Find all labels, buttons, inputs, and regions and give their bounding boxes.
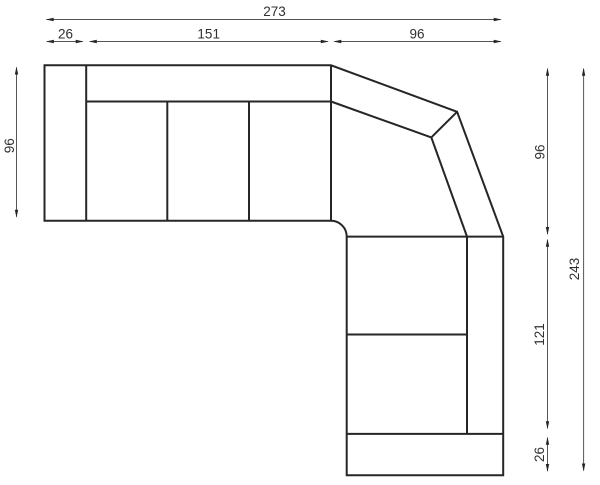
svg-text:151: 151 [197,27,220,42]
svg-text:96: 96 [2,138,17,153]
svg-text:273: 273 [263,4,286,19]
svg-text:121: 121 [532,323,547,346]
svg-text:243: 243 [567,258,582,281]
svg-text:26: 26 [532,447,547,462]
svg-text:96: 96 [409,27,424,42]
svg-text:96: 96 [532,144,547,159]
svg-text:26: 26 [58,27,73,42]
